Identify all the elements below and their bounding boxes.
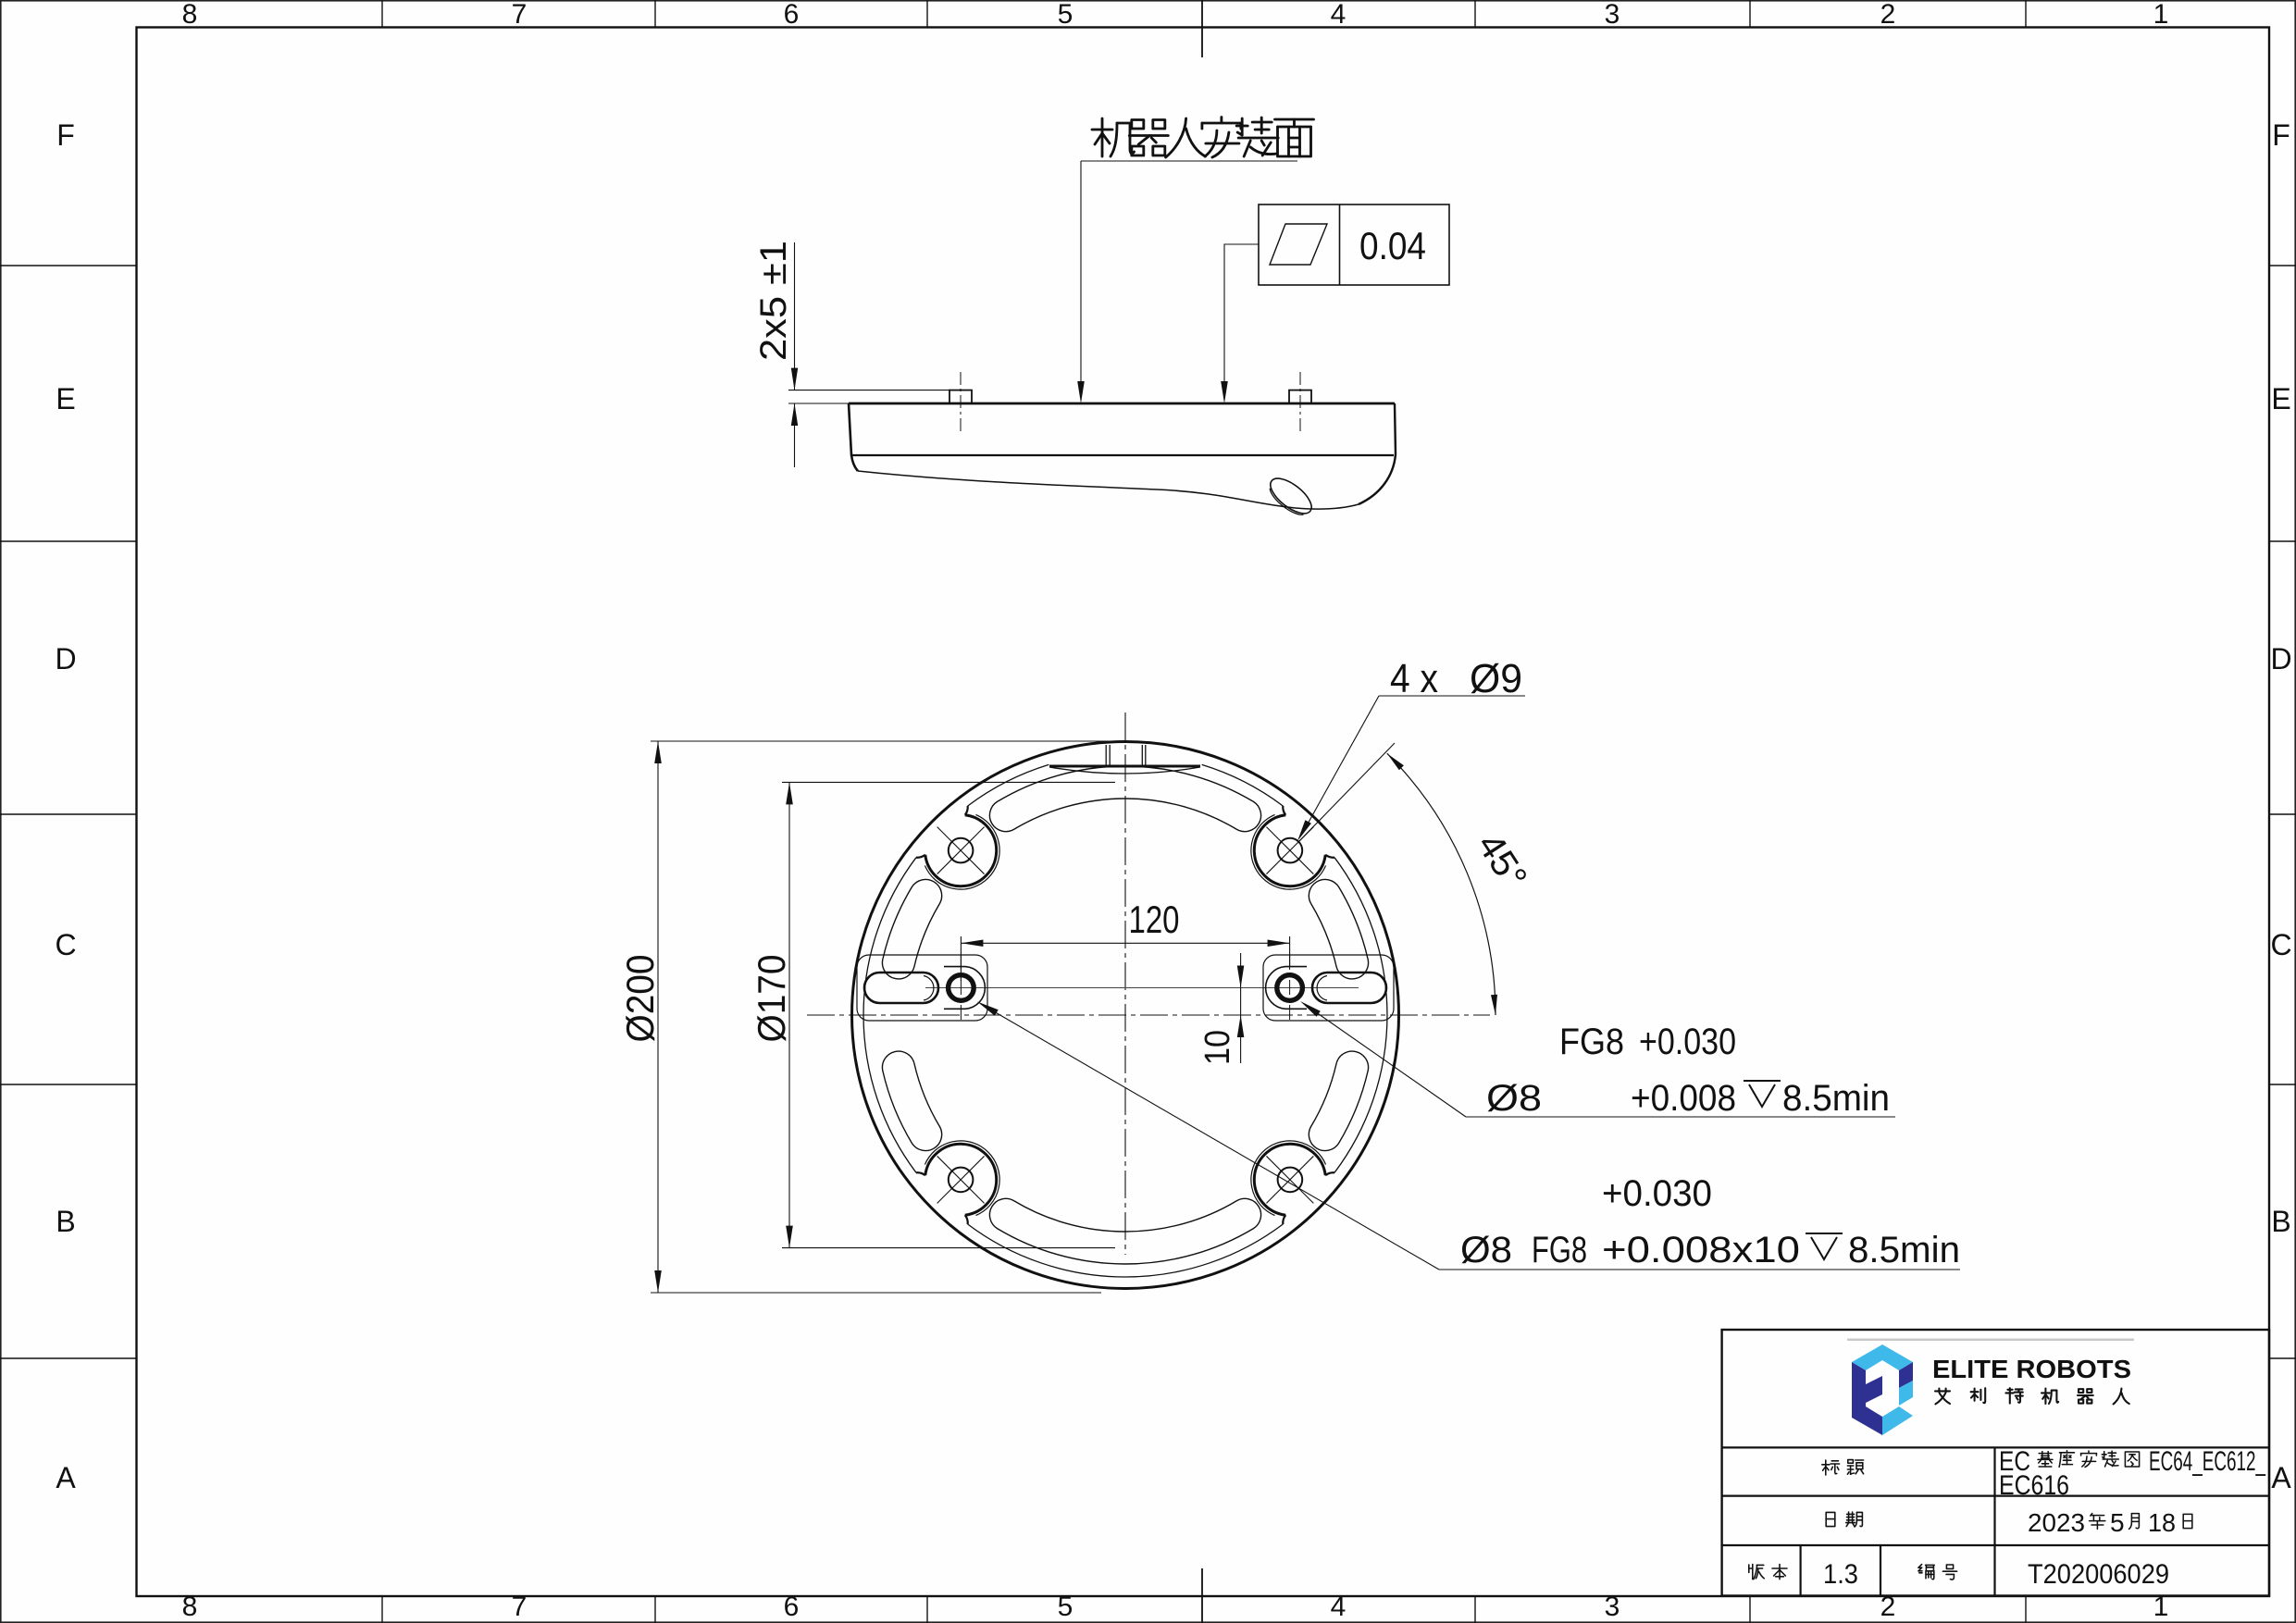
svg-text:1.3: 1.3 [1823,1559,1858,1590]
svg-text:4: 4 [1331,0,1347,30]
svg-text:8.5min: 8.5min [1848,1230,1960,1270]
svg-text:6: 6 [784,0,800,30]
svg-text:4 x: 4 x [1390,656,1438,701]
svg-text:4: 4 [1331,1592,1347,1622]
svg-text:Ø8: Ø8 [1486,1078,1542,1119]
svg-text:FG8: FG8 [1532,1230,1587,1270]
svg-text:E: E [56,382,75,415]
svg-text:Ø8: Ø8 [1460,1230,1512,1270]
svg-text:6: 6 [784,1592,800,1622]
svg-text:Ø170: Ø170 [750,955,793,1043]
svg-text:5: 5 [1058,0,1074,30]
svg-text:+0.030: +0.030 [1602,1173,1712,1214]
svg-text:3: 3 [1605,1592,1620,1622]
svg-text:7: 7 [512,1592,527,1622]
svg-text:+0.030: +0.030 [1639,1022,1736,1062]
svg-text:T202006029: T202006029 [2028,1559,2169,1590]
svg-text:120: 120 [1129,898,1180,941]
svg-text:5: 5 [1058,1592,1074,1622]
svg-text:18: 18 [2148,1508,2176,1537]
svg-text:10: 10 [1198,1030,1237,1065]
svg-text:2: 2 [1880,0,1896,30]
svg-text:8.5min: 8.5min [1782,1078,1890,1119]
svg-text:EC64_EC612_: EC64_EC612_ [2149,1446,2266,1477]
svg-text:F: F [56,118,75,152]
svg-text:ELITE ROBOTS: ELITE ROBOTS [1932,1355,2131,1383]
svg-text:8: 8 [182,0,198,30]
svg-text:8: 8 [182,1592,198,1622]
svg-text:Ø9: Ø9 [1470,656,1522,701]
svg-text:FG8: FG8 [1559,1022,1624,1062]
svg-text:3: 3 [1605,0,1620,30]
svg-text:C: C [55,928,76,961]
svg-text:C: C [2270,928,2291,961]
svg-text:F: F [2272,118,2290,152]
svg-text:5: 5 [2110,1508,2125,1537]
svg-text:A: A [56,1461,76,1494]
svg-text:EC616: EC616 [1999,1470,2069,1501]
svg-text:E: E [2271,382,2290,415]
svg-text:0.04: 0.04 [1359,224,1426,267]
svg-text:B: B [2271,1205,2290,1238]
svg-text:Ø200: Ø200 [618,955,662,1043]
svg-text:7: 7 [512,0,527,30]
svg-text:D: D [55,642,76,675]
svg-text:1: 1 [2153,0,2169,30]
svg-text:2023: 2023 [2028,1508,2085,1537]
svg-text:+0.008x10: +0.008x10 [1602,1230,1800,1270]
svg-text:2x5 ±1: 2x5 ±1 [753,241,794,361]
svg-text:D: D [2270,642,2291,675]
svg-text:+0.008: +0.008 [1631,1078,1736,1119]
svg-text:A: A [2271,1461,2291,1494]
svg-text:B: B [56,1205,75,1238]
